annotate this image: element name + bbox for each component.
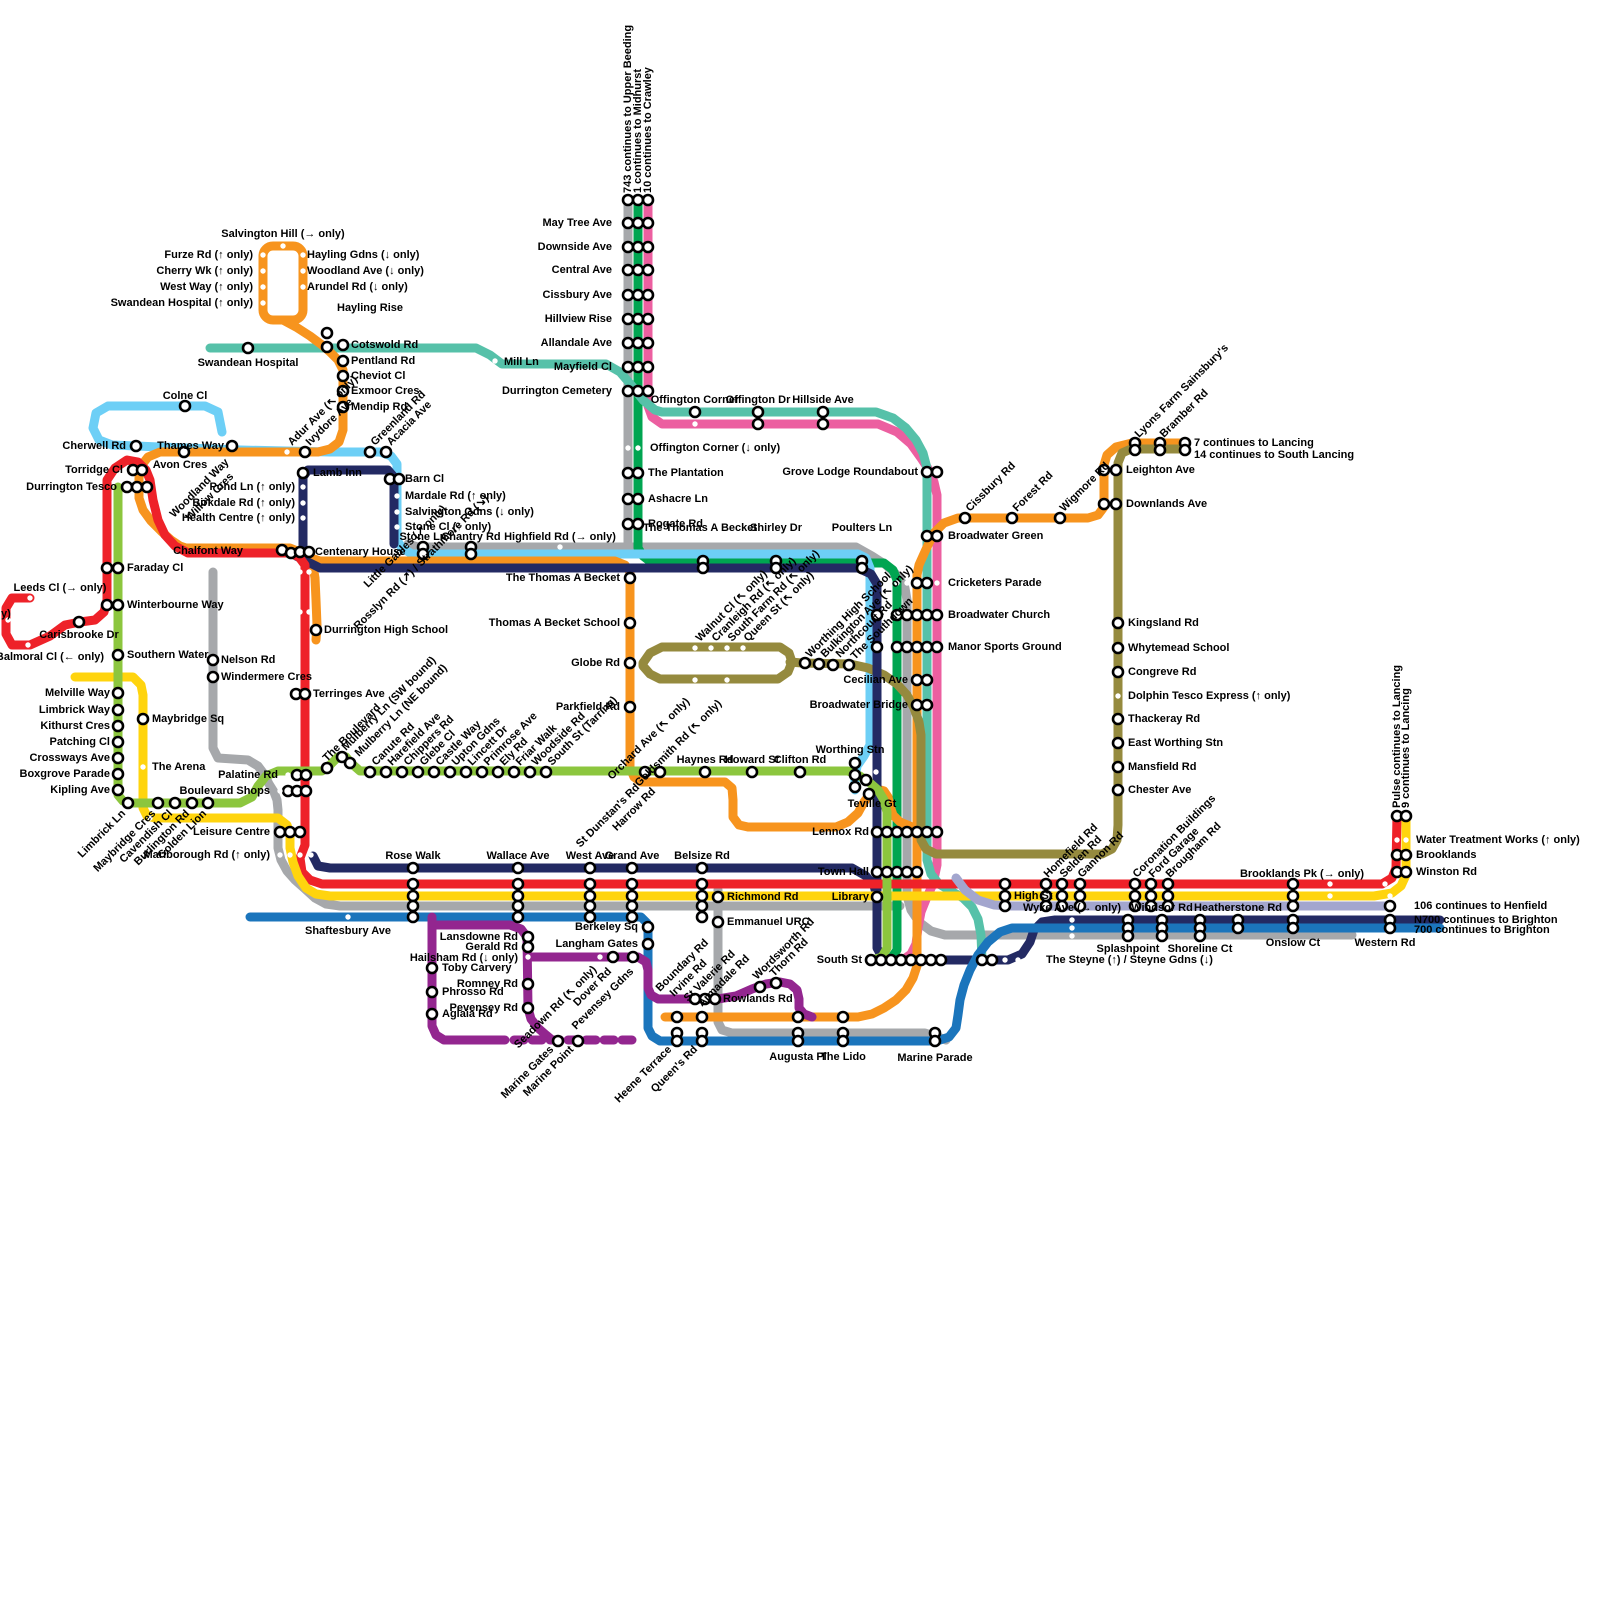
request-stop-marker[interactable]: [27, 595, 32, 600]
stop-marker[interactable]: [365, 447, 375, 457]
request-stop-marker[interactable]: [934, 580, 939, 585]
stop-marker[interactable]: [922, 675, 932, 685]
stop-marker[interactable]: [926, 955, 936, 965]
stop-marker[interactable]: [866, 955, 876, 965]
request-stop-marker[interactable]: [284, 449, 289, 454]
stop-marker[interactable]: [633, 386, 643, 396]
stop-marker[interactable]: [700, 767, 710, 777]
stop-marker[interactable]: [922, 642, 932, 652]
stop-marker[interactable]: [585, 901, 595, 911]
stop-marker[interactable]: [906, 955, 916, 965]
request-stop-marker[interactable]: [1015, 957, 1020, 962]
stop-marker[interactable]: [912, 700, 922, 710]
stop-marker[interactable]: [523, 932, 533, 942]
stop-marker[interactable]: [697, 891, 707, 901]
request-stop-marker[interactable]: [260, 284, 265, 289]
stop-marker[interactable]: [922, 467, 932, 477]
stop-marker[interactable]: [523, 979, 533, 989]
request-stop-marker[interactable]: [345, 914, 350, 919]
stop-marker[interactable]: [523, 942, 533, 952]
stop-marker[interactable]: [633, 218, 643, 228]
stop-marker[interactable]: [861, 775, 871, 785]
stop-marker[interactable]: [643, 242, 653, 252]
stop-marker[interactable]: [427, 1009, 437, 1019]
stop-marker[interactable]: [628, 952, 638, 962]
stop-marker[interactable]: [625, 658, 635, 668]
request-stop-marker[interactable]: [525, 954, 530, 959]
stop-marker[interactable]: [1113, 785, 1123, 795]
stop-marker[interactable]: [1146, 891, 1156, 901]
request-stop-marker[interactable]: [1069, 917, 1074, 922]
stop-marker[interactable]: [623, 494, 633, 504]
stop-marker[interactable]: [623, 386, 633, 396]
stop-marker[interactable]: [113, 705, 123, 715]
stop-marker[interactable]: [322, 763, 332, 773]
stop-marker[interactable]: [793, 1036, 803, 1046]
stop-marker[interactable]: [932, 467, 942, 477]
stop-marker[interactable]: [322, 328, 332, 338]
stop-marker[interactable]: [113, 563, 123, 573]
stop-marker[interactable]: [1130, 891, 1140, 901]
stop-marker[interactable]: [208, 655, 218, 665]
stop-marker[interactable]: [922, 531, 932, 541]
stop-marker[interactable]: [1401, 867, 1411, 877]
stop-marker[interactable]: [643, 218, 653, 228]
stop-marker[interactable]: [461, 767, 471, 777]
stop-marker[interactable]: [180, 401, 190, 411]
stop-marker[interactable]: [1195, 931, 1205, 941]
stop-marker[interactable]: [912, 610, 922, 620]
stop-marker[interactable]: [413, 767, 423, 777]
stop-marker[interactable]: [902, 827, 912, 837]
stop-marker[interactable]: [138, 714, 148, 724]
stop-marker[interactable]: [828, 660, 838, 670]
stop-marker[interactable]: [1000, 891, 1010, 901]
stop-marker[interactable]: [912, 642, 922, 652]
stop-marker[interactable]: [960, 513, 970, 523]
stop-marker[interactable]: [793, 1012, 803, 1022]
stop-marker[interactable]: [838, 1012, 848, 1022]
request-stop-marker[interactable]: [287, 852, 292, 857]
stop-marker[interactable]: [902, 867, 912, 877]
stop-marker[interactable]: [713, 892, 723, 902]
stop-marker[interactable]: [892, 642, 902, 652]
stop-marker[interactable]: [585, 891, 595, 901]
request-stop-marker[interactable]: [1327, 881, 1332, 886]
stop-marker[interactable]: [672, 1012, 682, 1022]
request-stop-marker[interactable]: [1387, 893, 1392, 898]
stop-marker[interactable]: [850, 770, 860, 780]
request-stop-marker[interactable]: [277, 852, 282, 857]
request-stop-marker[interactable]: [724, 645, 729, 650]
stop-marker[interactable]: [1055, 513, 1065, 523]
stop-marker[interactable]: [1007, 513, 1017, 523]
stop-marker[interactable]: [1401, 850, 1411, 860]
stop-marker[interactable]: [304, 547, 314, 557]
stop-marker[interactable]: [1075, 891, 1085, 901]
stop-marker[interactable]: [553, 1036, 563, 1046]
stop-marker[interactable]: [170, 798, 180, 808]
stop-marker[interactable]: [892, 827, 902, 837]
stop-marker[interactable]: [643, 314, 653, 324]
stop-marker[interactable]: [365, 767, 375, 777]
stop-marker[interactable]: [643, 195, 653, 205]
stop-marker[interactable]: [623, 218, 633, 228]
stop-marker[interactable]: [513, 912, 523, 922]
stop-marker[interactable]: [633, 290, 643, 300]
request-stop-marker[interactable]: [708, 645, 713, 650]
stop-marker[interactable]: [408, 891, 418, 901]
stop-marker[interactable]: [930, 1036, 940, 1046]
stop-marker[interactable]: [513, 863, 523, 873]
stop-marker[interactable]: [1113, 667, 1123, 677]
stop-marker[interactable]: [912, 867, 922, 877]
stop-marker[interactable]: [623, 265, 633, 275]
stop-marker[interactable]: [113, 737, 123, 747]
stop-marker[interactable]: [477, 767, 487, 777]
stop-marker[interactable]: [381, 767, 391, 777]
stop-marker[interactable]: [633, 195, 643, 205]
request-stop-marker[interactable]: [25, 642, 30, 647]
request-stop-marker[interactable]: [297, 609, 302, 614]
request-stop-marker[interactable]: [260, 268, 265, 273]
stop-marker[interactable]: [102, 600, 112, 610]
request-stop-marker[interactable]: [1403, 837, 1408, 842]
request-stop-marker[interactable]: [306, 609, 311, 614]
stop-marker[interactable]: [643, 265, 653, 275]
request-stop-marker[interactable]: [300, 284, 305, 289]
stop-marker[interactable]: [800, 658, 810, 668]
request-stop-marker[interactable]: [1115, 693, 1120, 698]
request-stop-marker[interactable]: [300, 484, 305, 489]
stop-marker[interactable]: [408, 879, 418, 889]
request-stop-marker[interactable]: [300, 500, 305, 505]
stop-marker[interactable]: [876, 955, 886, 965]
stop-marker[interactable]: [300, 447, 310, 457]
request-stop-marker[interactable]: [285, 772, 290, 777]
stop-marker[interactable]: [295, 827, 305, 837]
stop-marker[interactable]: [633, 468, 643, 478]
stop-marker[interactable]: [625, 618, 635, 628]
stop-marker[interactable]: [902, 642, 912, 652]
stop-marker[interactable]: [1288, 901, 1298, 911]
stop-marker[interactable]: [187, 798, 197, 808]
stop-marker[interactable]: [753, 419, 763, 429]
stop-marker[interactable]: [338, 340, 348, 350]
request-stop-marker[interactable]: [1382, 881, 1387, 886]
request-stop-marker[interactable]: [692, 677, 697, 682]
stop-marker[interactable]: [755, 982, 765, 992]
stop-marker[interactable]: [627, 901, 637, 911]
request-stop-marker[interactable]: [300, 515, 305, 520]
stop-marker[interactable]: [608, 952, 618, 962]
stop-marker[interactable]: [625, 702, 635, 712]
stop-marker[interactable]: [623, 242, 633, 252]
request-stop-marker[interactable]: [394, 524, 399, 529]
request-stop-marker[interactable]: [260, 300, 265, 305]
stop-marker[interactable]: [1385, 923, 1395, 933]
stop-marker[interactable]: [573, 1036, 583, 1046]
stop-marker[interactable]: [690, 407, 700, 417]
stop-marker[interactable]: [872, 892, 882, 902]
stop-marker[interactable]: [872, 827, 882, 837]
stop-marker[interactable]: [585, 879, 595, 889]
stop-marker[interactable]: [922, 827, 932, 837]
stop-marker[interactable]: [872, 867, 882, 877]
request-stop-marker[interactable]: [724, 677, 729, 682]
stop-marker[interactable]: [936, 955, 946, 965]
request-stop-marker[interactable]: [557, 544, 562, 549]
stop-marker[interactable]: [627, 863, 637, 873]
stop-marker[interactable]: [818, 419, 828, 429]
stop-marker[interactable]: [932, 610, 942, 620]
request-stop-marker[interactable]: [914, 533, 919, 538]
stop-marker[interactable]: [427, 987, 437, 997]
stop-marker[interactable]: [987, 955, 997, 965]
stop-marker[interactable]: [633, 338, 643, 348]
stop-marker[interactable]: [408, 901, 418, 911]
stop-marker[interactable]: [541, 767, 551, 777]
stop-marker[interactable]: [1000, 879, 1010, 889]
stop-marker[interactable]: [74, 617, 84, 627]
stop-marker[interactable]: [697, 912, 707, 922]
stop-marker[interactable]: [123, 798, 133, 808]
stop-marker[interactable]: [153, 798, 163, 808]
stop-marker[interactable]: [623, 314, 633, 324]
request-stop-marker[interactable]: [635, 445, 640, 450]
stop-marker[interactable]: [922, 578, 932, 588]
stop-marker[interactable]: [697, 901, 707, 911]
stop-marker[interactable]: [322, 342, 332, 352]
stop-marker[interactable]: [513, 901, 523, 911]
request-stop-marker[interactable]: [140, 764, 145, 769]
stop-marker[interactable]: [227, 441, 237, 451]
request-stop-marker[interactable]: [300, 268, 305, 273]
stop-marker[interactable]: [838, 1036, 848, 1046]
stop-marker[interactable]: [753, 407, 763, 417]
stop-marker[interactable]: [298, 468, 308, 478]
request-stop-marker[interactable]: [1002, 957, 1007, 962]
stop-marker[interactable]: [713, 917, 723, 927]
stop-marker[interactable]: [1099, 499, 1109, 509]
request-stop-marker[interactable]: [492, 358, 497, 363]
stop-marker[interactable]: [932, 531, 942, 541]
stop-marker[interactable]: [912, 578, 922, 588]
stop-marker[interactable]: [625, 573, 635, 583]
request-stop-marker[interactable]: [1069, 933, 1074, 938]
stop-marker[interactable]: [113, 753, 123, 763]
stop-marker[interactable]: [643, 362, 653, 372]
stop-marker[interactable]: [1123, 931, 1133, 941]
stop-marker[interactable]: [1113, 762, 1123, 772]
stop-marker[interactable]: [301, 770, 311, 780]
stop-marker[interactable]: [1000, 901, 1010, 911]
request-stop-marker[interactable]: [597, 954, 602, 959]
stop-marker[interactable]: [208, 672, 218, 682]
stop-marker[interactable]: [633, 494, 643, 504]
stop-marker[interactable]: [113, 600, 123, 610]
stop-marker[interactable]: [1113, 643, 1123, 653]
stop-marker[interactable]: [697, 1012, 707, 1022]
stop-marker[interactable]: [397, 767, 407, 777]
stop-marker[interactable]: [1163, 891, 1173, 901]
stop-marker[interactable]: [623, 468, 633, 478]
stop-marker[interactable]: [932, 642, 942, 652]
stop-marker[interactable]: [623, 338, 633, 348]
request-stop-marker[interactable]: [1069, 925, 1074, 930]
stop-marker[interactable]: [1288, 891, 1298, 901]
stop-marker[interactable]: [623, 362, 633, 372]
stop-marker[interactable]: [585, 863, 595, 873]
stop-marker[interactable]: [1113, 738, 1123, 748]
stop-marker[interactable]: [381, 447, 391, 457]
stop-marker[interactable]: [698, 563, 708, 573]
stop-marker[interactable]: [977, 955, 987, 965]
stop-marker[interactable]: [243, 343, 253, 353]
stop-marker[interactable]: [857, 563, 867, 573]
stop-marker[interactable]: [886, 955, 896, 965]
stop-marker[interactable]: [142, 482, 152, 492]
stop-marker[interactable]: [633, 362, 643, 372]
request-stop-marker[interactable]: [300, 252, 305, 257]
stop-marker[interactable]: [922, 700, 932, 710]
stop-marker[interactable]: [850, 782, 860, 792]
stop-marker[interactable]: [850, 758, 860, 768]
stop-marker[interactable]: [814, 659, 824, 669]
stop-marker[interactable]: [771, 978, 781, 988]
stop-marker[interactable]: [697, 879, 707, 889]
stop-marker[interactable]: [912, 675, 922, 685]
stop-marker[interactable]: [882, 827, 892, 837]
stop-marker[interactable]: [1288, 879, 1298, 889]
stop-marker[interactable]: [627, 879, 637, 889]
station-label: Swandean Hospital: [198, 357, 299, 369]
request-stop-marker[interactable]: [260, 252, 265, 257]
stop-marker[interactable]: [394, 474, 404, 484]
stop-marker[interactable]: [623, 195, 633, 205]
stop-marker[interactable]: [132, 482, 142, 492]
stop-marker[interactable]: [285, 827, 295, 837]
stop-marker[interactable]: [1157, 931, 1167, 941]
request-stop-marker[interactable]: [297, 852, 302, 857]
stop-marker[interactable]: [623, 290, 633, 300]
stop-marker[interactable]: [892, 867, 902, 877]
stop-marker[interactable]: [643, 290, 653, 300]
stop-marker[interactable]: [131, 441, 141, 451]
stop-marker[interactable]: [1288, 923, 1298, 933]
stop-marker[interactable]: [844, 660, 854, 670]
stop-marker[interactable]: [301, 786, 311, 796]
stop-marker[interactable]: [137, 465, 147, 475]
stop-marker[interactable]: [1111, 465, 1121, 475]
request-stop-marker[interactable]: [1394, 837, 1399, 842]
stop-marker[interactable]: [203, 798, 213, 808]
request-stop-marker[interactable]: [625, 445, 630, 450]
stop-marker[interactable]: [445, 767, 455, 777]
stop-marker[interactable]: [466, 549, 476, 559]
stop-marker[interactable]: [672, 1036, 682, 1046]
request-stop-marker[interactable]: [277, 788, 282, 793]
stop-marker[interactable]: [1130, 445, 1140, 455]
request-stop-marker[interactable]: [297, 569, 302, 574]
stop-marker[interactable]: [932, 827, 942, 837]
request-stop-marker[interactable]: [394, 509, 399, 514]
stop-marker[interactable]: [300, 689, 310, 699]
request-stop-marker[interactable]: [692, 645, 697, 650]
request-stop-marker[interactable]: [306, 569, 311, 574]
stop-marker[interactable]: [633, 265, 643, 275]
stop-marker[interactable]: [633, 242, 643, 252]
stop-marker[interactable]: [493, 767, 503, 777]
stop-marker[interactable]: [896, 955, 906, 965]
stop-marker[interactable]: [818, 407, 828, 417]
stop-marker[interactable]: [513, 879, 523, 889]
stop-marker[interactable]: [513, 891, 523, 901]
stop-marker[interactable]: [1155, 445, 1165, 455]
stop-marker[interactable]: [643, 939, 653, 949]
request-stop-marker[interactable]: [1327, 893, 1332, 898]
stop-marker[interactable]: [311, 625, 321, 635]
stop-marker[interactable]: [408, 912, 418, 922]
stop-marker[interactable]: [113, 650, 123, 660]
request-stop-marker[interactable]: [308, 852, 313, 857]
stop-marker[interactable]: [338, 356, 348, 366]
stop-marker[interactable]: [1401, 811, 1411, 821]
stop-marker[interactable]: [102, 563, 112, 573]
stop-marker[interactable]: [1385, 901, 1395, 911]
stop-marker[interactable]: [113, 721, 123, 731]
request-stop-marker[interactable]: [692, 421, 697, 426]
stop-marker[interactable]: [912, 827, 922, 837]
request-stop-marker[interactable]: [740, 645, 745, 650]
stop-marker[interactable]: [345, 758, 355, 768]
stop-marker[interactable]: [643, 338, 653, 348]
stop-marker[interactable]: [113, 688, 123, 698]
stop-marker[interactable]: [1113, 714, 1123, 724]
stop-marker[interactable]: [122, 482, 132, 492]
stop-marker[interactable]: [275, 827, 285, 837]
stop-marker[interactable]: [623, 519, 633, 529]
stop-marker[interactable]: [113, 769, 123, 779]
stop-marker[interactable]: [643, 922, 653, 932]
stop-marker[interactable]: [113, 785, 123, 795]
stop-marker[interactable]: [922, 610, 932, 620]
stop-marker[interactable]: [1180, 445, 1190, 455]
stop-marker[interactable]: [509, 767, 519, 777]
request-stop-marker[interactable]: [394, 493, 399, 498]
request-stop-marker[interactable]: [280, 243, 285, 248]
stop-marker[interactable]: [1233, 923, 1243, 933]
stop-marker[interactable]: [882, 867, 892, 877]
stop-marker[interactable]: [795, 767, 805, 777]
stop-marker[interactable]: [523, 1003, 533, 1013]
stop-marker[interactable]: [697, 1036, 707, 1046]
stop-marker[interactable]: [408, 863, 418, 873]
stop-marker[interactable]: [916, 955, 926, 965]
stop-marker[interactable]: [633, 314, 643, 324]
stop-marker[interactable]: [1113, 618, 1123, 628]
stop-marker[interactable]: [1111, 499, 1121, 509]
stop-marker[interactable]: [627, 891, 637, 901]
stop-marker[interactable]: [1057, 891, 1067, 901]
stop-marker[interactable]: [525, 767, 535, 777]
stop-marker[interactable]: [633, 519, 643, 529]
stop-marker[interactable]: [747, 767, 757, 777]
stop-marker[interactable]: [429, 767, 439, 777]
stop-marker[interactable]: [427, 963, 437, 973]
stop-marker[interactable]: [697, 863, 707, 873]
request-stop-marker[interactable]: [873, 769, 878, 774]
